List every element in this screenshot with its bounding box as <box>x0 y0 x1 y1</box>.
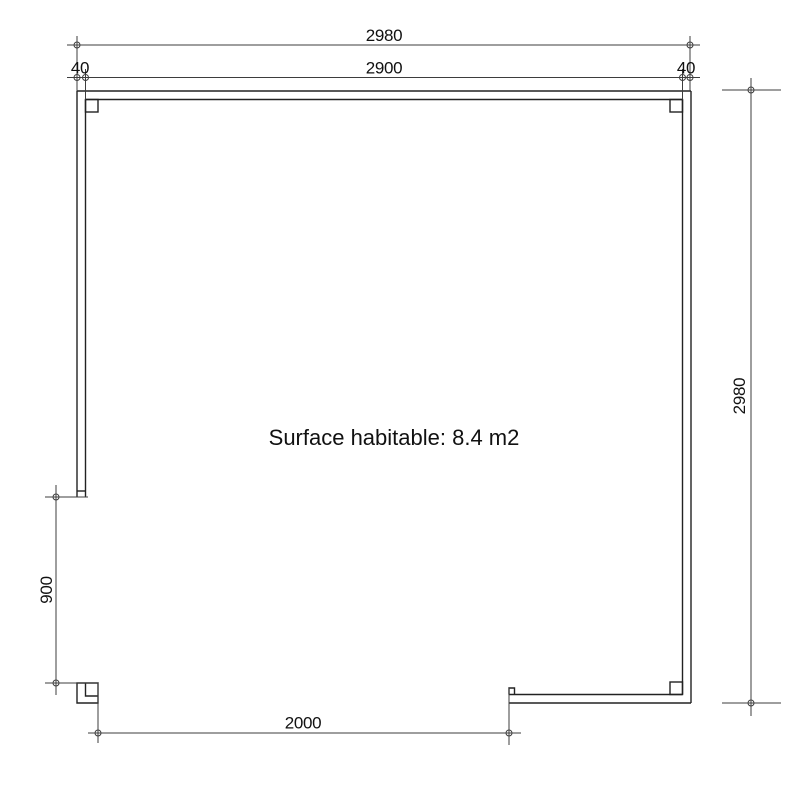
dim-overall-depth-label: 2980 <box>730 378 749 415</box>
area-label: Surface habitable: 8.4 m2 <box>269 425 520 450</box>
corner-post-top-left <box>86 100 99 113</box>
corner-post-bottom-left <box>77 683 98 703</box>
wall-outer-lines <box>77 91 691 703</box>
dim-overall-depth: 2980 <box>722 78 781 716</box>
corner-post-top-right <box>670 100 683 113</box>
dim-inner-width-label: 2900 <box>366 59 403 78</box>
front-opening-jamb <box>509 688 515 695</box>
dim-wall-left-label: 40 <box>71 59 89 78</box>
wall-inner-lines <box>86 100 683 695</box>
dim-front-opening-label: 2000 <box>285 714 322 733</box>
floor-plan: 2980 40 2900 40 2980 900 <box>0 0 800 800</box>
dim-side-opening: 900 <box>37 485 98 695</box>
dim-front-opening: 2000 <box>88 683 521 745</box>
dim-inner-width: 40 2900 40 <box>67 59 700 100</box>
dim-overall-width-label: 2980 <box>366 26 403 45</box>
dim-side-opening-label: 900 <box>37 576 56 603</box>
walls <box>77 91 691 703</box>
dim-wall-right-label: 40 <box>677 59 695 78</box>
floor-plan-canvas: 2980 40 2900 40 2980 900 <box>0 0 800 800</box>
corner-post-bottom-right <box>670 682 683 695</box>
